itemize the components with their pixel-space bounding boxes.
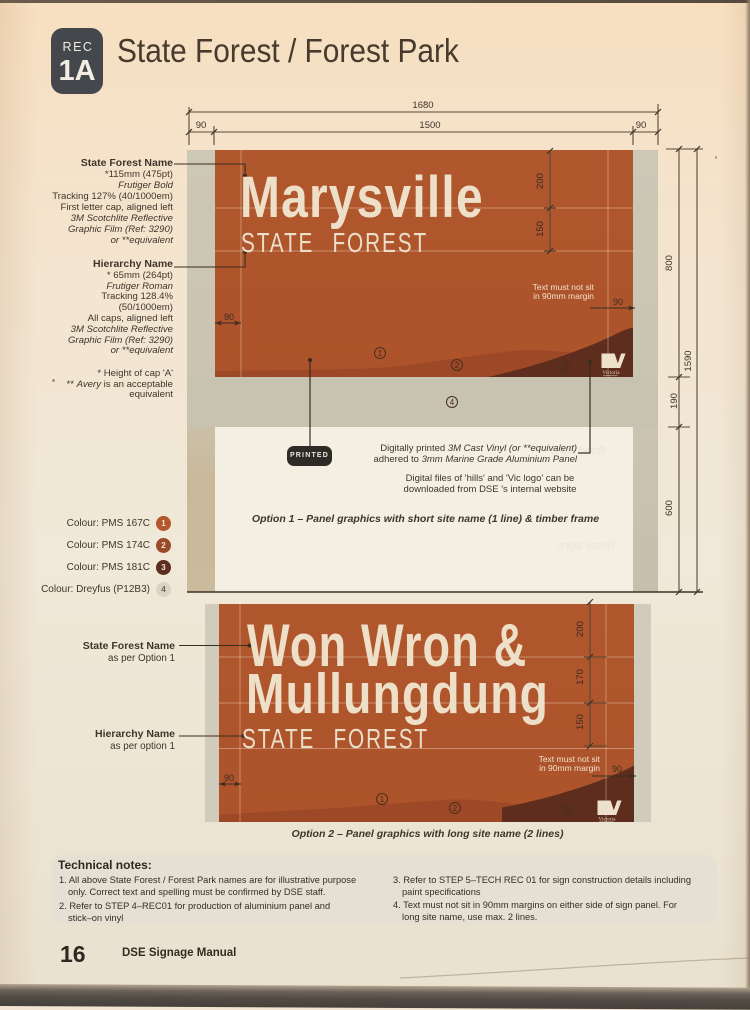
- svg-text:1: 1: [380, 795, 385, 804]
- svg-text:90: 90: [224, 312, 234, 322]
- svg-text:1590: 1590: [683, 350, 694, 371]
- svg-text:3: 3: [565, 806, 570, 815]
- svg-text:800: 800: [664, 255, 675, 271]
- svg-text:90: 90: [612, 764, 622, 774]
- svg-text:3: 3: [563, 363, 568, 372]
- svg-text:200: 200: [535, 173, 546, 189]
- svg-text:1500: 1500: [419, 120, 440, 131]
- svg-text:150: 150: [575, 714, 586, 730]
- svg-text:90: 90: [224, 773, 234, 783]
- svg-text:90: 90: [196, 120, 207, 131]
- svg-text:1: 1: [378, 349, 383, 358]
- svg-text:4: 4: [450, 398, 455, 407]
- svg-text:90: 90: [613, 297, 623, 307]
- svg-text:2: 2: [455, 361, 460, 370]
- svg-text:170: 170: [575, 669, 586, 685]
- svg-text:150: 150: [535, 221, 546, 237]
- svg-text:200: 200: [575, 621, 586, 637]
- svg-text:Victoria: Victoria: [603, 371, 621, 376]
- svg-text:190: 190: [669, 393, 680, 409]
- svg-text:1680: 1680: [412, 100, 433, 111]
- svg-text:90: 90: [636, 120, 647, 131]
- svg-text:2: 2: [453, 804, 458, 813]
